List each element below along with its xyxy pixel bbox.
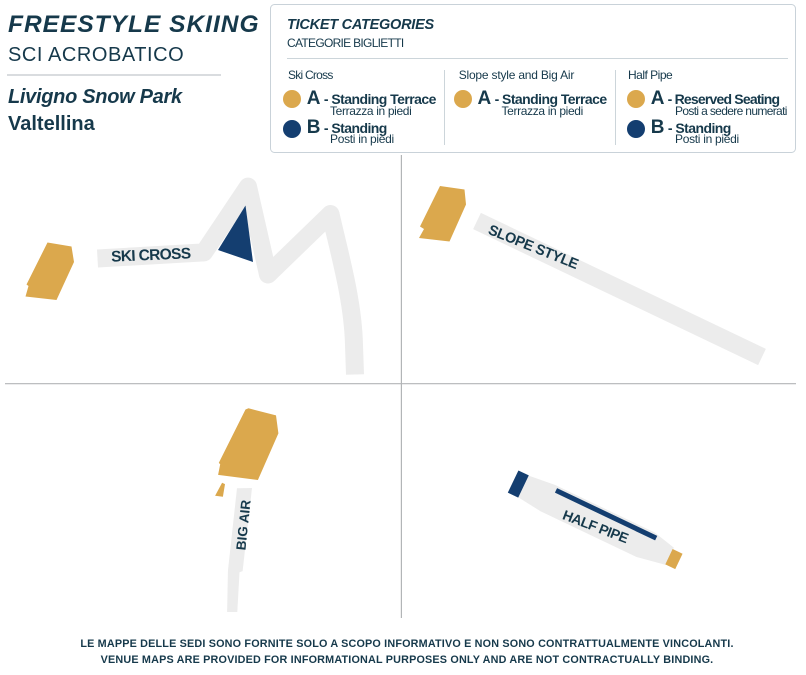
svg-text:SKI CROSS: SKI CROSS [111, 245, 191, 265]
svg-text:SLOPE STYLE: SLOPE STYLE [486, 222, 581, 273]
